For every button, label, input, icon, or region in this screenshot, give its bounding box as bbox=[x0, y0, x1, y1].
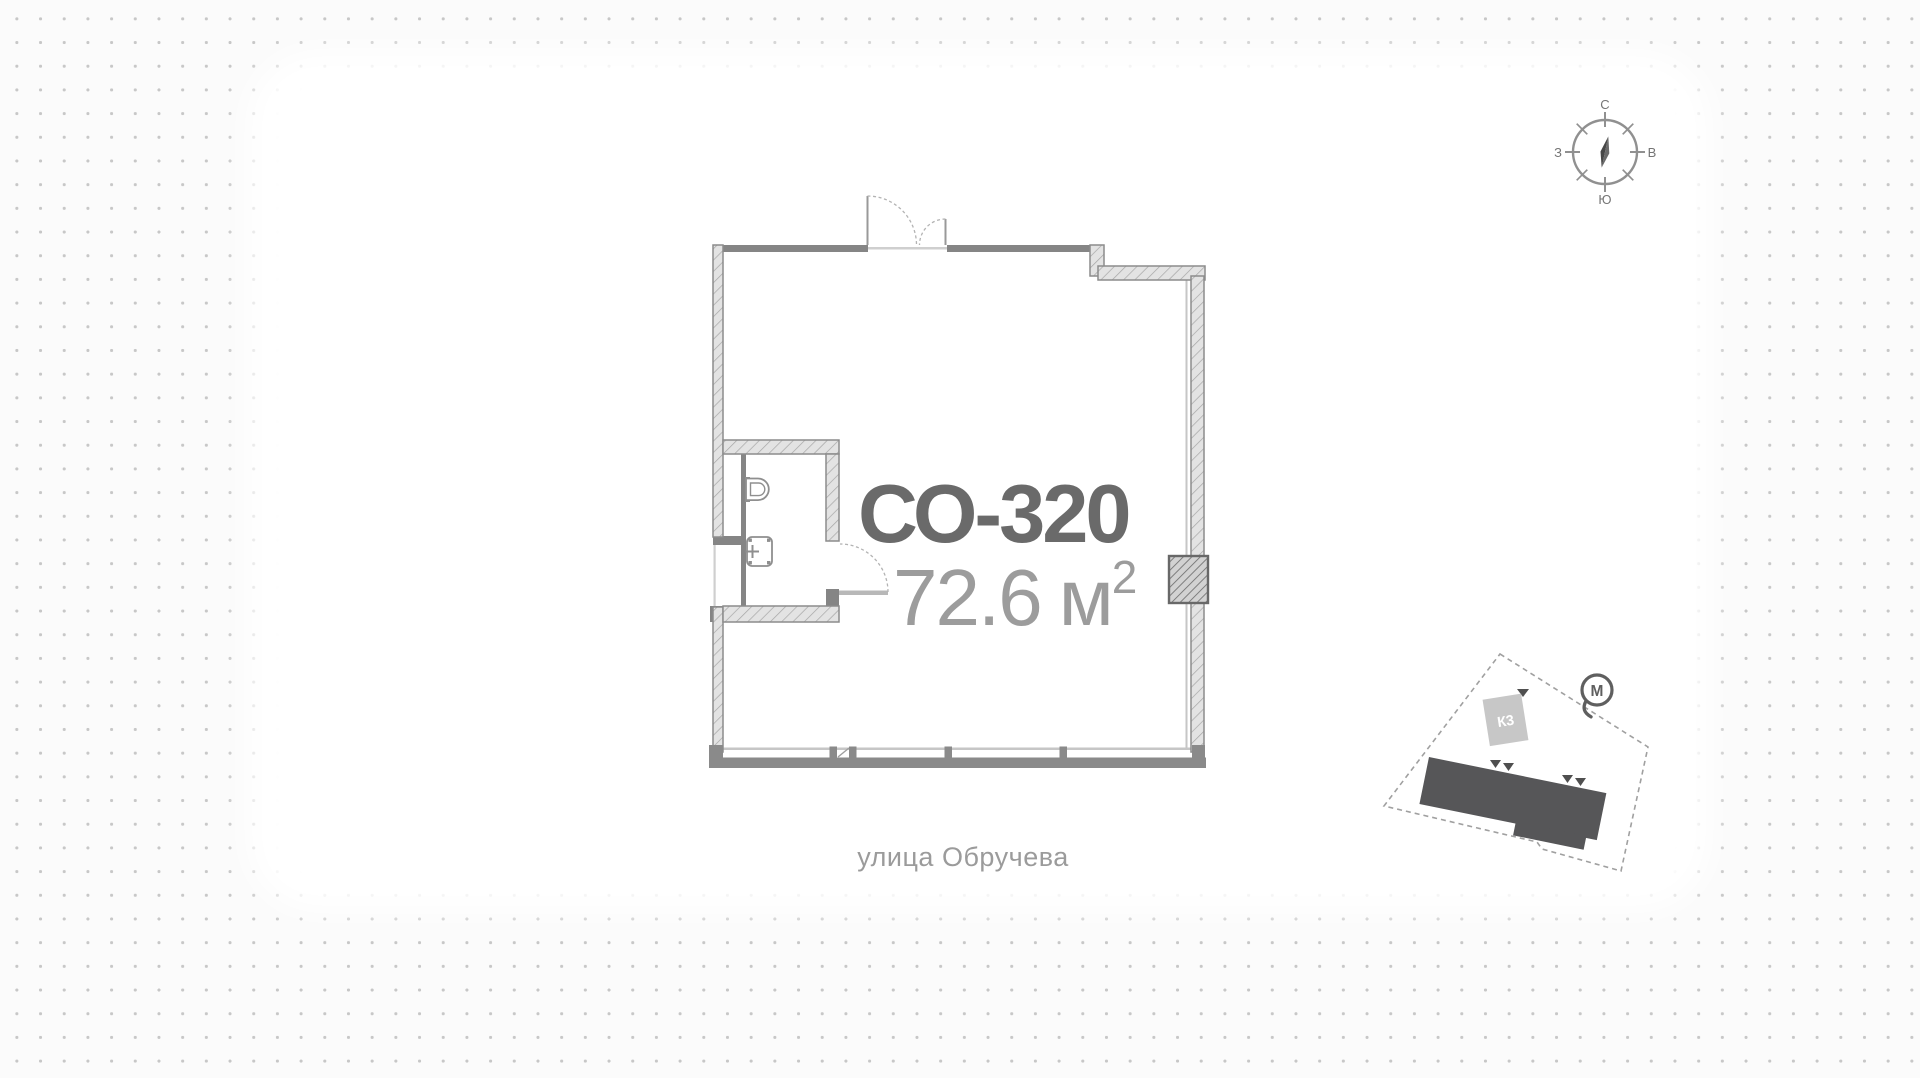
window-corner-post bbox=[1192, 745, 1205, 768]
main-building bbox=[1417, 757, 1606, 852]
toilet-icon bbox=[745, 477, 769, 502]
entrance-marker bbox=[1503, 763, 1514, 771]
compass-west-label: З bbox=[1554, 145, 1562, 160]
window-mullion bbox=[830, 747, 838, 768]
wall-segment bbox=[947, 245, 1092, 252]
wall-segment bbox=[826, 454, 839, 541]
window-mullion bbox=[1060, 747, 1068, 768]
window-band-outer bbox=[709, 758, 1206, 769]
compass-south-label: Ю bbox=[1598, 192, 1611, 207]
entrance-marker bbox=[1562, 775, 1573, 783]
door-swing-arc bbox=[920, 219, 946, 245]
south-window-inner-line bbox=[712, 748, 1204, 751]
wall-segment bbox=[723, 606, 839, 622]
main-building-bar bbox=[1419, 757, 1606, 840]
metro-letter: М bbox=[1591, 683, 1604, 700]
window-mullion bbox=[849, 747, 857, 768]
unit-area-value: 72.6 bbox=[893, 553, 1041, 642]
compass-icon: С Ю З В bbox=[1554, 97, 1656, 207]
wall-segment bbox=[826, 589, 839, 606]
entrance-sill-line bbox=[868, 247, 947, 250]
left-window-line bbox=[714, 545, 716, 607]
sink-corner bbox=[749, 539, 752, 542]
wall-segment bbox=[741, 454, 746, 606]
window-corner-post bbox=[709, 745, 723, 768]
building-k3: К3 bbox=[1483, 694, 1529, 747]
compass-east-label: В bbox=[1648, 145, 1657, 160]
metro-icon: М bbox=[1582, 675, 1612, 717]
compass-north-label: С bbox=[1600, 97, 1609, 112]
sink-corner bbox=[767, 539, 770, 542]
sink-icon bbox=[746, 537, 773, 566]
unit-area-unit: м bbox=[1059, 553, 1112, 642]
unit-area-exponent: 2 bbox=[1112, 551, 1138, 603]
door-swing-arc bbox=[868, 196, 917, 245]
electrical-shaft-box bbox=[1169, 556, 1208, 603]
wall-segment bbox=[713, 245, 723, 537]
door-leaf bbox=[839, 591, 888, 596]
entrance-marker bbox=[1490, 760, 1501, 768]
sink-corner bbox=[767, 561, 770, 564]
sink-corner bbox=[749, 561, 752, 564]
street-label: улица Обручева bbox=[813, 842, 1113, 873]
wall-segment bbox=[714, 245, 868, 252]
entrance-door bbox=[868, 196, 946, 245]
unit-area: 72.6м2 bbox=[893, 558, 1137, 638]
unit-title: СО-320 bbox=[858, 472, 1129, 555]
window-mullion bbox=[945, 747, 953, 768]
building-k3-label: К3 bbox=[1496, 713, 1515, 731]
entrance-marker bbox=[1575, 778, 1586, 786]
right-wall-inner-line bbox=[1186, 280, 1188, 748]
wall-segment bbox=[713, 607, 723, 752]
site-map: К3 М bbox=[1384, 654, 1648, 871]
wall-segment bbox=[1191, 276, 1204, 752]
wall-segment bbox=[723, 440, 839, 454]
wall-segment bbox=[1098, 266, 1205, 280]
